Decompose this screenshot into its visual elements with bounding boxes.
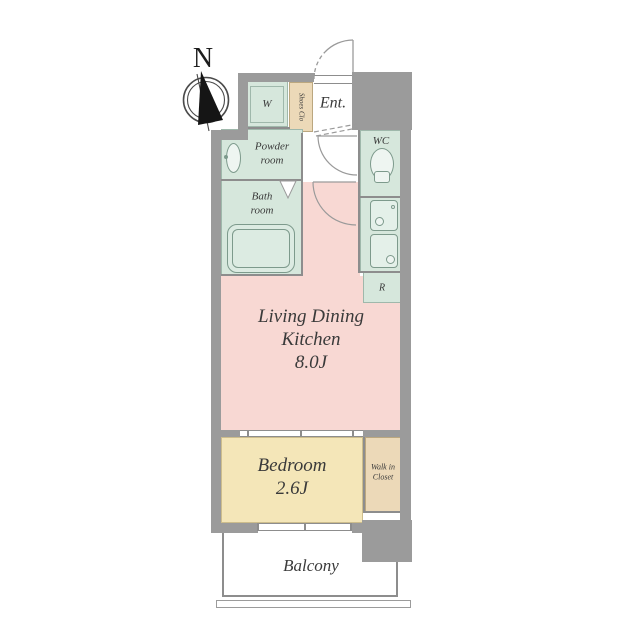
washbasin xyxy=(226,143,241,173)
north-label: N xyxy=(193,43,213,74)
wall-top-right-block xyxy=(352,72,412,130)
wall-wic-bottom xyxy=(365,511,401,513)
ldk-corridor xyxy=(303,182,360,278)
wall-under-washer xyxy=(246,127,290,129)
wall-powder-bath xyxy=(221,179,303,181)
balcony-label: Balcony xyxy=(283,555,339,577)
ldk-label: Living Dining Kitchen 8.0J xyxy=(258,306,364,374)
bathtub-inner xyxy=(232,229,290,268)
wall-left xyxy=(211,138,221,533)
wall-bottom-left xyxy=(211,523,258,533)
shoes-closet-label: Shoes Clo xyxy=(296,93,305,121)
balcony-rail-bottom xyxy=(222,595,398,597)
base-platform xyxy=(216,600,411,608)
wc-door-swing xyxy=(318,136,357,175)
washer-label: W xyxy=(262,97,271,111)
kitchen-faucet xyxy=(391,205,395,209)
wall-top-left xyxy=(238,73,248,133)
wall-wc-bottom xyxy=(358,196,401,198)
north-compass-icon: N xyxy=(184,43,229,131)
entrance-label: Ent. xyxy=(320,94,346,115)
wall-hall-right xyxy=(358,130,360,273)
slider-wall-left xyxy=(221,430,240,437)
wall-kitchen-bottom xyxy=(360,271,401,273)
wc-label: WC xyxy=(373,134,390,148)
floor-plan: N Ent. W Shoes Clo Powderroom Bathroom W… xyxy=(0,0,640,640)
wall-top xyxy=(240,73,315,82)
powder-room-label: Powderroom xyxy=(255,140,289,169)
slider-wall-right xyxy=(363,430,401,437)
sliding-door xyxy=(240,430,363,437)
refrigerator-label: R xyxy=(379,282,385,295)
bedroom-label: Bedroom 2.6J xyxy=(258,455,327,501)
entrance-door-opening xyxy=(314,75,353,84)
balcony-rail-left xyxy=(222,533,224,597)
wall-bottom-mid xyxy=(352,523,362,533)
kitchen-stove-burner xyxy=(386,255,395,264)
walk-in-closet-label: Walk inCloset xyxy=(371,463,395,484)
wall-hall-left xyxy=(301,133,303,276)
wall-bottom-right-block xyxy=(362,520,412,562)
balcony-rail-right xyxy=(396,562,398,597)
washbasin-faucet xyxy=(224,155,228,159)
kitchen-stove xyxy=(370,234,398,268)
wall-bedroom-wic xyxy=(363,437,365,513)
wall-right xyxy=(400,130,411,520)
entrance-door-swing xyxy=(314,40,353,79)
bedroom-window xyxy=(257,523,352,531)
kitchen-sink-bowl xyxy=(375,217,384,226)
toilet-tank xyxy=(374,171,390,183)
wall-bath-bottom xyxy=(221,274,303,276)
bath-room-label: Bathroom xyxy=(251,190,274,219)
